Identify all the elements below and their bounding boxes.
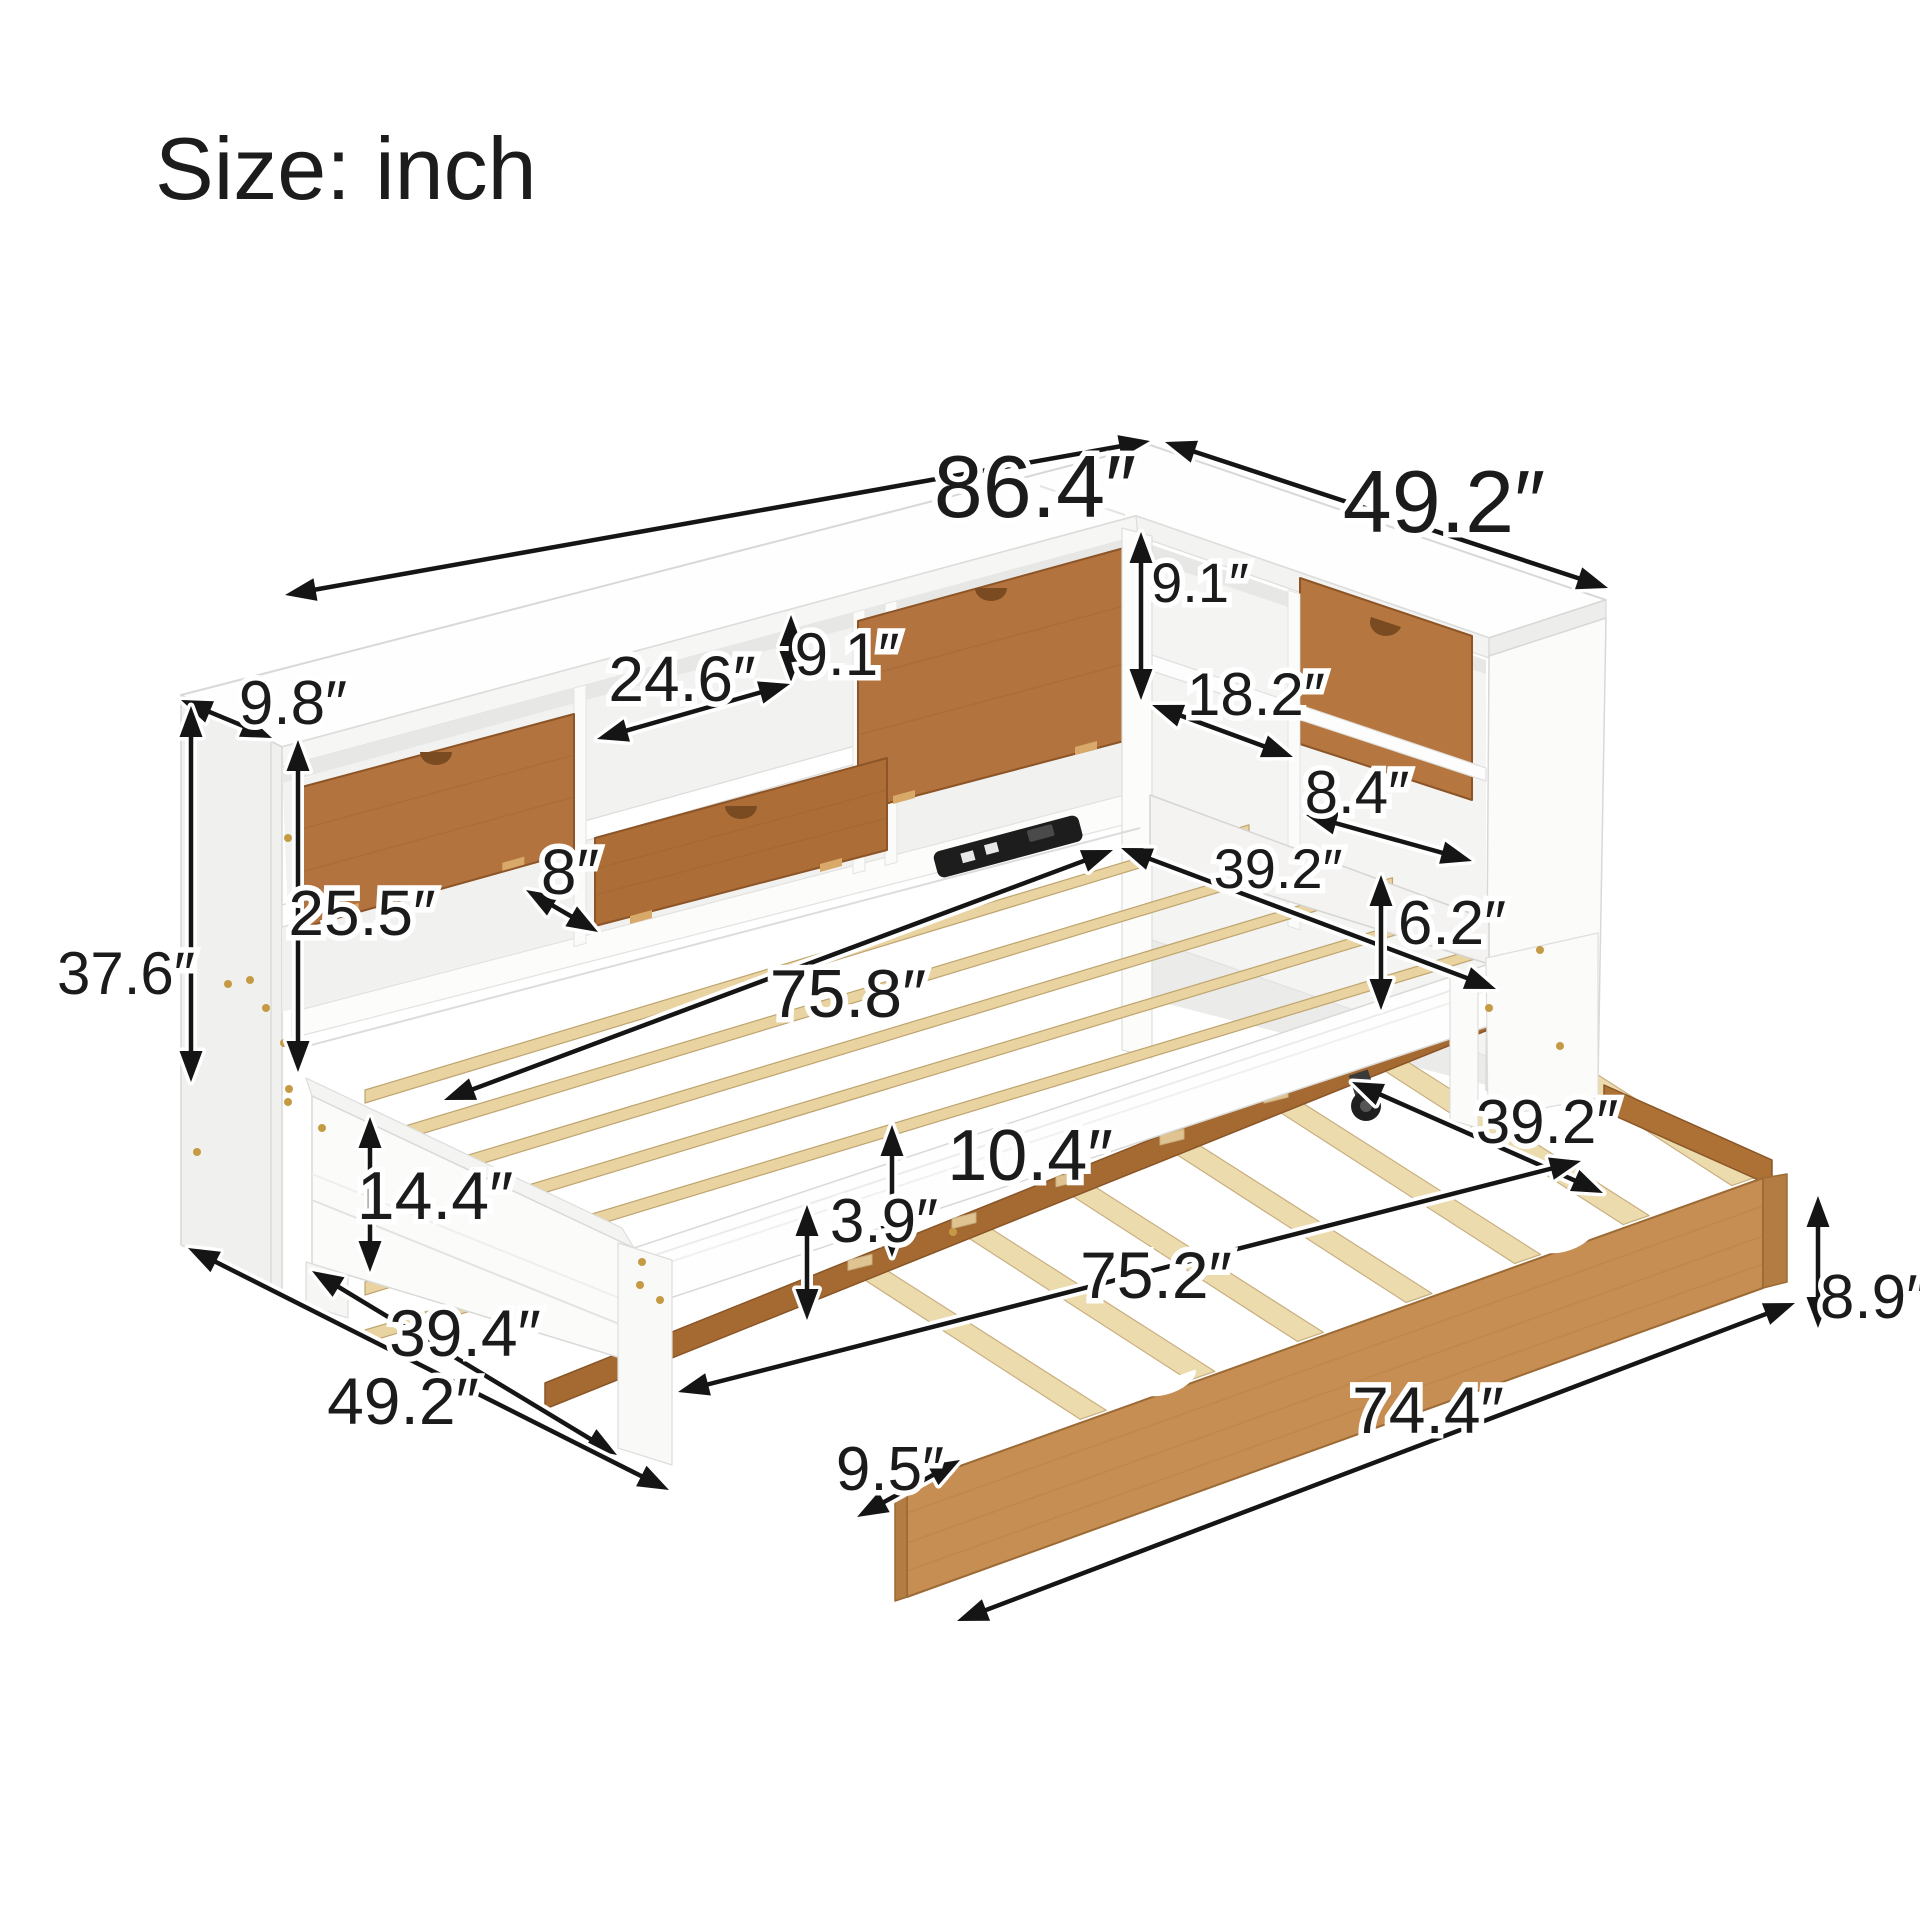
svg-text:9.1″: 9.1″: [1151, 551, 1249, 614]
svg-text:25.5″: 25.5″: [288, 877, 435, 949]
svg-text:37.6″: 37.6″: [57, 940, 195, 1007]
svg-text:86.4″: 86.4″: [934, 437, 1136, 536]
svg-text:9.5″: 9.5″: [836, 1435, 944, 1504]
svg-text:49.2″: 49.2″: [1343, 452, 1545, 551]
svg-text:75.2″: 75.2″: [1080, 1238, 1232, 1312]
svg-text:3.9″: 3.9″: [830, 1187, 938, 1256]
svg-text:8″: 8″: [541, 836, 599, 908]
svg-text:39.2″: 39.2″: [1476, 1088, 1619, 1157]
svg-text:9.8″: 9.8″: [239, 669, 347, 738]
svg-text:49.2″: 49.2″: [327, 1364, 479, 1438]
svg-text:9.1″: 9.1″: [795, 621, 900, 688]
svg-text:75.8″: 75.8″: [770, 956, 926, 1032]
svg-text:6.2″: 6.2″: [1398, 889, 1506, 958]
svg-text:14.4″: 14.4″: [357, 1158, 513, 1234]
svg-text:10.4″: 10.4″: [947, 1116, 1113, 1196]
svg-text:8.9″: 8.9″: [1820, 1263, 1920, 1332]
svg-text:74.4″: 74.4″: [1352, 1373, 1504, 1447]
svg-text:39.2″: 39.2″: [1214, 837, 1343, 900]
svg-text:8.4″: 8.4″: [1305, 759, 1410, 826]
svg-text:24.6″: 24.6″: [608, 643, 755, 715]
svg-text:39.4″: 39.4″: [389, 1296, 541, 1370]
svg-text:18.2″: 18.2″: [1187, 661, 1325, 728]
